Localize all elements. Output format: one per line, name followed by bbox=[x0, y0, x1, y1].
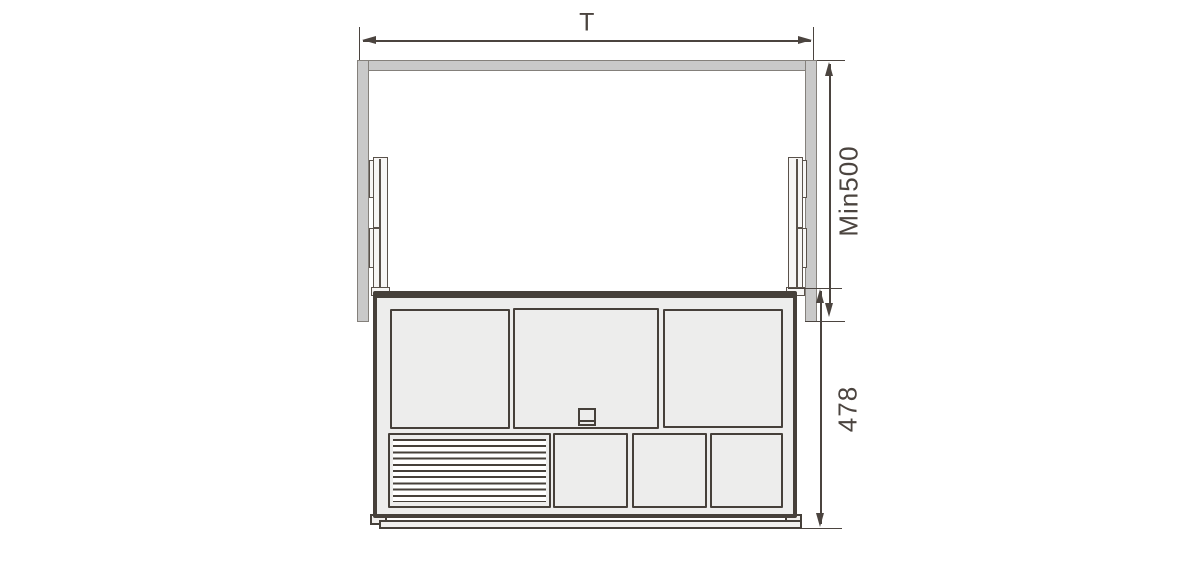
center-tray-clip bbox=[578, 408, 596, 426]
center-tray-clip-line bbox=[579, 420, 595, 422]
dim-width-arrow-right bbox=[798, 36, 812, 44]
tray-slats bbox=[393, 439, 546, 502]
tray-top-right bbox=[663, 309, 783, 428]
dim-upper-label: Min500 bbox=[834, 145, 865, 236]
dim-lower-extension-bottom bbox=[790, 528, 842, 529]
dim-width-extension-right bbox=[813, 27, 814, 63]
tray-top-left bbox=[390, 309, 510, 429]
tray-bottom-1 bbox=[553, 433, 628, 508]
cabinet-frame-top bbox=[357, 60, 817, 71]
drawer-base-bar bbox=[379, 520, 802, 529]
left-rail-divider bbox=[374, 227, 380, 229]
dim-width-label: T bbox=[579, 9, 595, 38]
dim-width-line bbox=[363, 40, 811, 42]
dim-upper-arrow-down bbox=[825, 303, 833, 317]
cabinet-frame-left-side bbox=[357, 60, 369, 322]
dim-lower-arrow-down bbox=[816, 513, 824, 527]
dim-upper-extension-bottom bbox=[805, 321, 845, 322]
right-rail-divider bbox=[796, 227, 802, 229]
tray-bottom-3 bbox=[710, 433, 783, 508]
dim-upper-extension-top bbox=[817, 60, 845, 61]
dim-lower-label: 478 bbox=[833, 386, 864, 432]
dim-lower-arrow-up bbox=[816, 289, 824, 303]
dim-upper-arrow-up bbox=[825, 62, 833, 76]
dim-width-extension-left bbox=[359, 27, 360, 63]
dim-width-arrow-left bbox=[362, 36, 376, 44]
dim-lower-line bbox=[820, 291, 822, 524]
dim-lower-extension-top bbox=[788, 288, 842, 289]
dim-upper-line bbox=[829, 64, 831, 305]
tray-slatted bbox=[388, 433, 551, 508]
technical-drawing-canvas: T Min500 478 bbox=[0, 0, 1200, 570]
tray-bottom-2 bbox=[632, 433, 707, 508]
